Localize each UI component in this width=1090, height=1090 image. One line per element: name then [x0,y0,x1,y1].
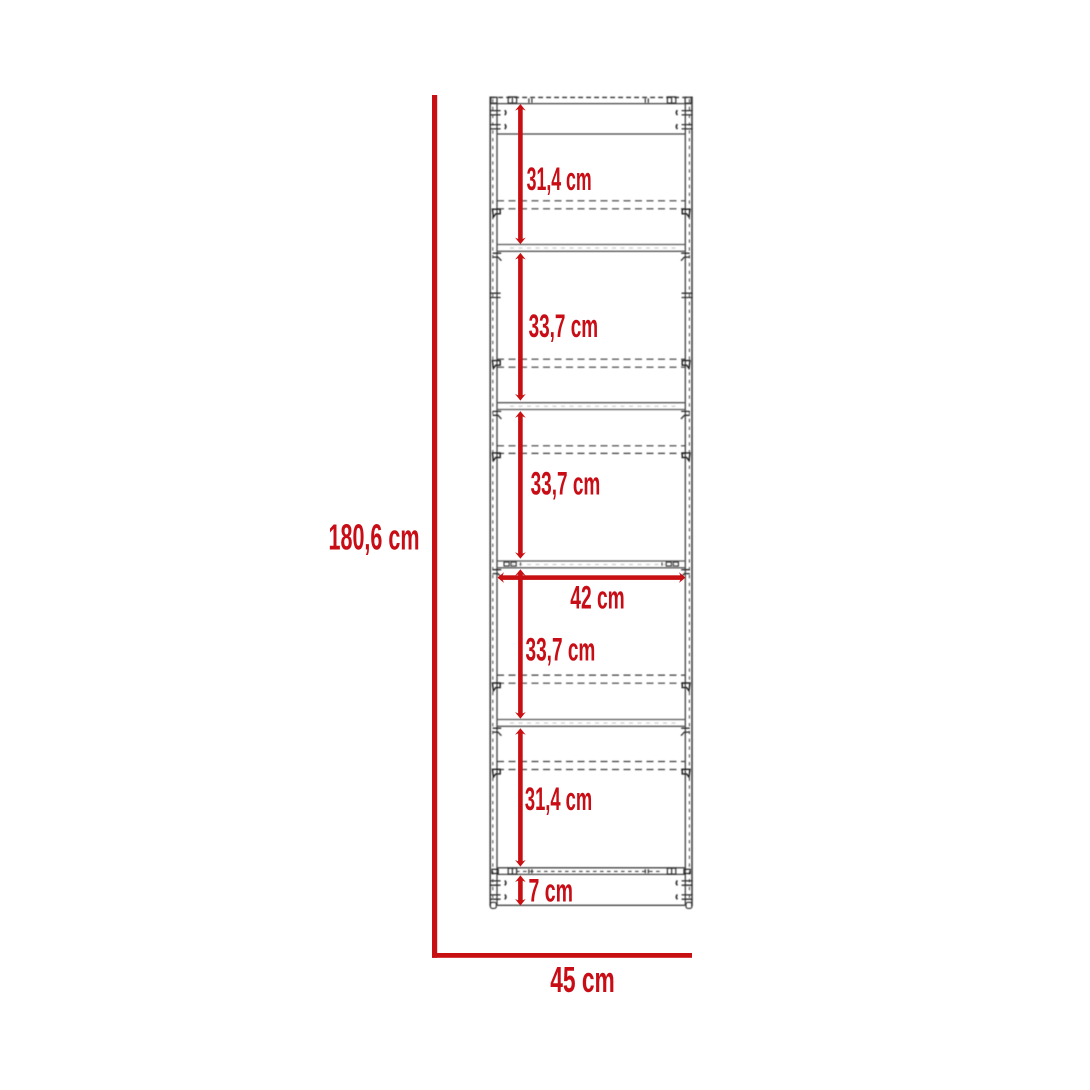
svg-text:33,7 cm: 33,7 cm [526,631,596,668]
svg-text:31,4 cm: 31,4 cm [527,160,592,197]
svg-text:31,4 cm: 31,4 cm [525,780,592,817]
svg-text:33,7 cm: 33,7 cm [529,308,599,345]
svg-text:45 cm: 45 cm [550,961,615,1000]
svg-text:7 cm: 7 cm [529,872,573,908]
svg-text:33,7 cm: 33,7 cm [531,465,601,502]
svg-text:180,6 cm: 180,6 cm [329,518,420,558]
svg-text:42 cm: 42 cm [570,579,624,615]
